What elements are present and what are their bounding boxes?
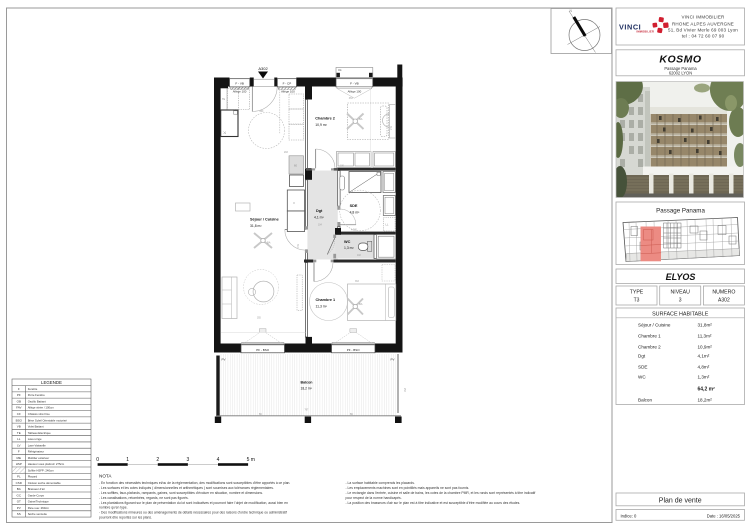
svg-text:Séjour / Cuisine: Séjour / Cuisine xyxy=(250,218,279,222)
svg-text:NOTA: NOTA xyxy=(99,474,112,479)
svg-text:363: 363 xyxy=(355,281,360,283)
svg-text:4,080: 4,080 xyxy=(351,229,357,231)
svg-text:SURFACE HABITABLE: SURFACE HABITABLE xyxy=(652,312,709,318)
svg-text:64,2 m²: 64,2 m² xyxy=(698,386,716,392)
svg-text:SS: SS xyxy=(17,512,21,516)
svg-text:Porte Fenêtre: Porte Fenêtre xyxy=(28,393,46,397)
svg-text:4,1m²: 4,1m² xyxy=(698,354,710,359)
svg-text:CSD: CSD xyxy=(16,481,23,485)
svg-text:pour respect de la norme handi: pour respect de la norme handicapés. xyxy=(346,496,402,500)
svg-text:PF: PF xyxy=(17,393,21,397)
svg-text:NIVEAU: NIVEAU xyxy=(671,290,691,296)
svg-text:- Le rectangle dans l'entrée,: - Le rectangle dans l'entrée, cuisine et… xyxy=(346,491,536,495)
svg-text:18,2 m²: 18,2 m² xyxy=(301,387,313,391)
svg-text:Hauteur sous plafond: 275cm: Hauteur sous plafond: 275cm xyxy=(28,462,65,466)
svg-text:- Les plantations figurant sur: - Les plantations figurant sur le plan d… xyxy=(99,501,288,505)
svg-text:Chambre 2: Chambre 2 xyxy=(638,344,661,349)
svg-text:11,3 m²: 11,3 m² xyxy=(316,305,328,309)
svg-text:0: 0 xyxy=(96,457,99,463)
svg-text:252: 252 xyxy=(403,388,405,393)
svg-text:363: 363 xyxy=(349,98,354,100)
svg-text:Balcon: Balcon xyxy=(638,397,652,402)
svg-text:10,9m²: 10,9m² xyxy=(698,344,713,349)
svg-text:Fenêtre: Fenêtre xyxy=(28,387,38,391)
svg-text:Séjour / Cuisine: Séjour / Cuisine xyxy=(638,323,671,328)
svg-text:3: 3 xyxy=(679,298,682,304)
svg-text:Brasseur d'air: Brasseur d'air xyxy=(28,487,45,491)
svg-text:BC: BC xyxy=(350,414,354,416)
svg-text:ELYOS: ELYOS xyxy=(666,272,696,282)
svg-text:Allège 100: Allège 100 xyxy=(281,90,295,94)
svg-text:BA: BA xyxy=(359,117,363,121)
svg-text:- Des modifications mineures o: - Des modifications mineures ou des amén… xyxy=(99,511,287,515)
svg-text:Date : 16/05/2025: Date : 16/05/2025 xyxy=(707,513,741,518)
svg-text:KOSMO: KOSMO xyxy=(659,54,701,66)
svg-text:FAV: FAV xyxy=(16,406,21,410)
svg-text:Passage Panama: Passage Panama xyxy=(656,208,705,215)
svg-text:1,3m²: 1,3m² xyxy=(698,374,710,379)
svg-text:Volet Battant: Volet Battant xyxy=(28,425,44,429)
svg-text:Garde-Corps: Garde-Corps xyxy=(28,493,45,497)
svg-text:- La surface habitable compren: - La surface habitable comprends les pla… xyxy=(346,481,415,485)
svg-text:4,8m²: 4,8m² xyxy=(698,365,710,370)
svg-text:CF: CF xyxy=(17,412,21,416)
svg-text:F - VB: F - VB xyxy=(350,82,359,86)
svg-text:Châssis vitré Fixe: Châssis vitré Fixe xyxy=(28,412,51,416)
svg-text:260: 260 xyxy=(260,111,265,113)
svg-text:Placard: Placard xyxy=(28,475,38,479)
svg-text:1: 1 xyxy=(126,457,129,463)
svg-text:TE: TE xyxy=(17,431,21,435)
svg-text:F: F xyxy=(18,387,20,391)
svg-text:SDE: SDE xyxy=(638,365,647,370)
svg-text:- Les canalisations, retombées: - Les canalisations, retombées, regards,… xyxy=(99,496,189,500)
svg-text:- En fonction des nécessités t: - En fonction des nécessités techniques … xyxy=(99,481,290,485)
svg-text:Chambre 1: Chambre 1 xyxy=(638,334,661,339)
svg-text:Dgt: Dgt xyxy=(316,209,323,213)
svg-text:A302: A302 xyxy=(718,298,730,304)
svg-text:BC: BC xyxy=(259,414,263,416)
svg-text:PV: PV xyxy=(391,358,395,362)
svg-text:LL: LL xyxy=(386,223,389,227)
svg-text:62002 LYON: 62002 LYON xyxy=(669,71,692,76)
svg-text:VB: VB xyxy=(17,425,21,429)
svg-text:Lave-Vaisselle: Lave-Vaisselle xyxy=(28,443,46,447)
svg-text:293: 293 xyxy=(284,152,289,154)
svg-text:51, Bd Vivier Merle 69 003 Lyo: 51, Bd Vivier Merle 69 003 Lyon xyxy=(668,27,738,32)
svg-text:18,2m²: 18,2m² xyxy=(698,397,713,402)
svg-text:5 m: 5 m xyxy=(247,457,255,463)
svg-text:Indice: 0: Indice: 0 xyxy=(621,513,638,518)
svg-text:Allège 100: Allège 100 xyxy=(348,90,362,94)
svg-text:Tableau Electrique: Tableau Electrique xyxy=(28,431,51,435)
svg-text:BA: BA xyxy=(359,302,363,306)
svg-text:Chambre 2: Chambre 2 xyxy=(315,117,335,121)
svg-text:F - CP: F - CP xyxy=(283,82,292,86)
svg-text:Balcon: Balcon xyxy=(301,381,313,385)
svg-text:10,9 m²: 10,9 m² xyxy=(315,123,327,127)
svg-text:PV: PV xyxy=(17,506,21,510)
svg-text:LEGENDE: LEGENDE xyxy=(41,380,62,385)
svg-text:PL: PL xyxy=(17,475,21,479)
svg-text:GT: GT xyxy=(17,500,21,504)
svg-text:WC: WC xyxy=(638,374,646,379)
svg-text:RHONE ALPES AUVERGNE: RHONE ALPES AUVERGNE xyxy=(672,21,734,26)
svg-text:tel : 04 72 60 07 90: tel : 04 72 60 07 90 xyxy=(682,33,725,38)
svg-text:BSO: BSO xyxy=(16,418,23,422)
svg-text:VINCI IMMOBILIER: VINCI IMMOBILIER xyxy=(682,14,726,19)
svg-text:Soffite HSFP: 240cm: Soffite HSFP: 240cm xyxy=(28,468,55,472)
svg-text:ME: ME xyxy=(17,456,22,460)
svg-text:Mobilier extérieur: Mobilier extérieur xyxy=(28,456,50,460)
svg-text:1,3 m²: 1,3 m² xyxy=(344,246,354,250)
svg-text:ME: ME xyxy=(338,69,342,72)
svg-text:3: 3 xyxy=(187,457,190,463)
svg-text:Réfrigérateur: Réfrigérateur xyxy=(28,450,44,454)
svg-text:PF - BSO: PF - BSO xyxy=(347,348,361,352)
svg-text:SDE: SDE xyxy=(350,204,358,208)
svg-text:Lave-Linge: Lave-Linge xyxy=(28,437,42,441)
svg-text:Sèche serviette: Sèche serviette xyxy=(28,512,48,516)
svg-text:T3: T3 xyxy=(634,298,640,304)
svg-text:11,3m²: 11,3m² xyxy=(698,334,712,339)
svg-text:- Les emplacements machines so: - Les emplacements machines sont en poin… xyxy=(346,486,470,490)
svg-text:- Les soffites, faux-plafonds,: - Les soffites, faux-plafonds, rampants,… xyxy=(99,491,263,495)
svg-text:Allège vitrée / 100cm: Allège vitrée / 100cm xyxy=(28,406,55,410)
svg-text:PF - BSO: PF - BSO xyxy=(256,348,270,352)
svg-text:- Les surfaces et les cotes in: - Les surfaces et les cotes indiqués ( d… xyxy=(99,486,274,490)
svg-text:nombre qu'en type.: nombre qu'en type. xyxy=(99,506,128,510)
svg-text:PV: PV xyxy=(222,358,226,362)
svg-text:TE: TE xyxy=(222,98,225,101)
svg-text:Plan de vente: Plan de vente xyxy=(659,498,702,505)
svg-text:31,8 m²: 31,8 m² xyxy=(250,224,262,228)
svg-text:TYPE: TYPE xyxy=(630,290,644,296)
svg-text:A302: A302 xyxy=(258,66,268,71)
svg-text:Dgt: Dgt xyxy=(638,354,646,359)
svg-text:NUMERO: NUMERO xyxy=(712,290,735,296)
svg-text:4,8 m²: 4,8 m² xyxy=(350,211,360,215)
svg-text:IMMOBILIER: IMMOBILIER xyxy=(637,30,655,34)
svg-text:Pare-vue: 260cm: Pare-vue: 260cm xyxy=(28,506,50,510)
svg-text:Oscillo Battant: Oscillo Battant xyxy=(28,399,46,403)
svg-text:Brise Soleil Orientable motori: Brise Soleil Orientable motorisé xyxy=(28,418,68,422)
svg-text:F: F xyxy=(18,450,20,454)
svg-text:355: 355 xyxy=(257,317,262,319)
svg-text:4,1 m²: 4,1 m² xyxy=(314,216,324,220)
svg-text:BA: BA xyxy=(267,241,271,245)
svg-text:4: 4 xyxy=(217,457,220,463)
svg-text:pourront être reportés sur les: pourront être reportés sur les plans. xyxy=(99,516,152,520)
svg-text:OB: OB xyxy=(17,399,21,403)
svg-text:2: 2 xyxy=(156,457,159,463)
svg-text:F - VB: F - VB xyxy=(235,82,244,86)
svg-text:Allège 100: Allège 100 xyxy=(233,90,247,94)
svg-text:Gaine/Technique: Gaine/Technique xyxy=(28,500,49,504)
svg-text:HSP: HSP xyxy=(16,462,22,466)
svg-text:Cloison sèche démontable: Cloison sèche démontable xyxy=(28,481,61,485)
svg-text:31,8m²: 31,8m² xyxy=(698,323,713,328)
svg-text:WC: WC xyxy=(344,240,351,244)
svg-text:LV: LV xyxy=(17,443,20,447)
svg-text:BA: BA xyxy=(17,487,21,491)
svg-text:- La position des brasseurs d': - La position des brasseurs d'air sur le… xyxy=(346,501,521,505)
svg-text:Chambre 1: Chambre 1 xyxy=(316,298,336,302)
svg-text:LL: LL xyxy=(17,437,21,441)
